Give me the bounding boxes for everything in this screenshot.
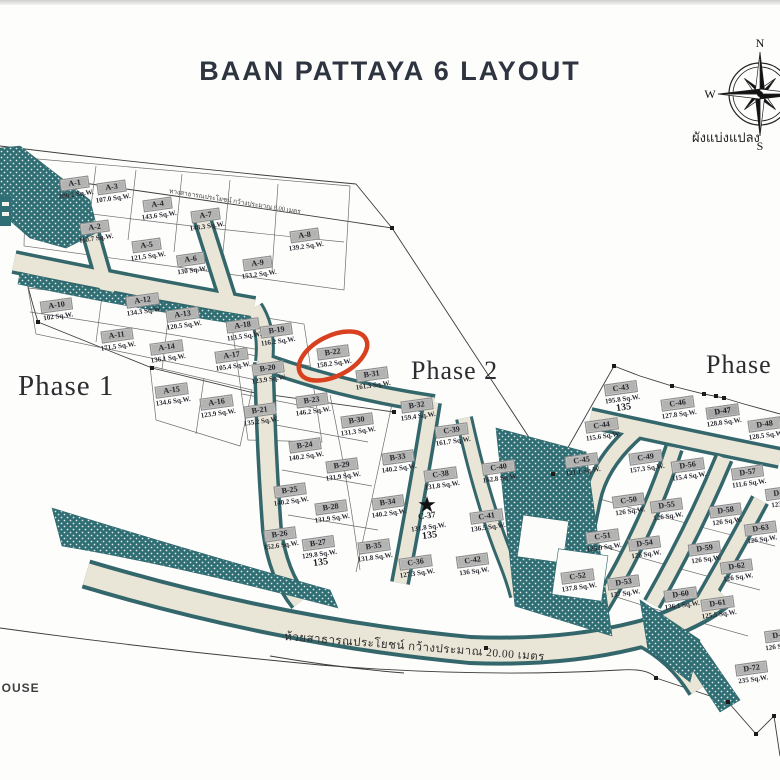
lot-a13: A-13120.5 Sq.W. bbox=[164, 302, 202, 332]
lot-b19: B-19116.2 Sq.W. bbox=[258, 318, 296, 348]
phase-1-label: Phase 1 bbox=[18, 370, 114, 403]
page-title: BAAN PATTAYA 6 LAYOUT bbox=[0, 56, 780, 87]
lot-d61: D-61125.5 Sq.W. bbox=[699, 591, 737, 621]
lot-a17: A-17105.4 Sq.W. bbox=[213, 343, 251, 373]
lot-c45: C-45121.1 Sq.W. bbox=[563, 448, 601, 478]
lot-b21: B-21135.2 Sq.W. bbox=[241, 398, 279, 428]
lot-d62: D-62126 Sq.W. bbox=[719, 554, 755, 583]
compass-n-label: N bbox=[756, 36, 765, 50]
lot-d59: D-59126 Sq.W. bbox=[687, 536, 723, 565]
lot-d54: D-54126 Sq.W. bbox=[627, 531, 663, 560]
lot-d60: D-60136.1 Sq.W. bbox=[662, 582, 700, 612]
lot-a11: A-11171.5 Sq.W. bbox=[98, 323, 136, 353]
lot-b20: B-20123.9 Sq.W. bbox=[249, 356, 287, 386]
lot-c39: C-39161.7 Sq.W. bbox=[433, 418, 471, 448]
lot-b23: B-23146.2 Sq.W. bbox=[293, 388, 331, 418]
lot-a15: A-15134.6 Sq.W. bbox=[153, 378, 191, 408]
lot-b24: B-24140.2 Sq.W. bbox=[286, 433, 324, 463]
lot-d48: D-48128.5 Sq.W. bbox=[746, 412, 780, 442]
lot-b27: B-27129.8 Sq.W.135 bbox=[299, 531, 339, 571]
lot-a3: A-3107.0 Sq.W. bbox=[93, 175, 131, 205]
lot-c36: C-36127.3 Sq.W. bbox=[397, 550, 435, 580]
lot-a18: A-18113.5 Sq.W. bbox=[224, 313, 262, 343]
page-top-edge bbox=[0, 0, 780, 5]
lot-a12: A-12134.3 Sq.W. bbox=[124, 288, 162, 318]
lot-c40: C-40162.8 Sq.W. bbox=[480, 455, 518, 485]
lot-b22-highlighted: B-22158.2 Sq.W. bbox=[314, 340, 352, 370]
compass-w-label: W bbox=[704, 87, 716, 101]
lot-a2: A-2110.7 Sq.W. bbox=[76, 215, 114, 245]
phase-3-label: Phase 3 bbox=[706, 350, 780, 380]
lot-a8: A-8139.2 Sq.W. bbox=[286, 223, 324, 253]
lot-d47: D-47128.8 Sq.W. bbox=[704, 399, 742, 429]
lot-b33: B-33140.2 Sq.W. bbox=[379, 445, 417, 475]
phase-2-label: Phase 2 bbox=[411, 356, 498, 386]
lot-id: D-7 bbox=[764, 628, 780, 644]
lot-d58: D-58126 Sq.W. bbox=[708, 498, 744, 527]
lot-a4: A-4143.6 Sq.W. bbox=[139, 192, 177, 222]
lot-b26: B-26152.6 Sq.W. bbox=[261, 522, 299, 552]
lot-d72: D-72235 Sq.W. bbox=[734, 656, 770, 685]
site-plan-map: ★ N S W E bbox=[0, 0, 780, 780]
lot-a9: A-9153.2 Sq.W. bbox=[239, 251, 277, 281]
lot-c51: C-51125.9 Sq.W. bbox=[584, 524, 622, 554]
lot-c52: C-52137.8 Sq.W. bbox=[559, 564, 597, 594]
lot-b31: B-31161.3 Sq.W. bbox=[353, 362, 391, 392]
lot-c38: C-38131.8 Sq.W. bbox=[422, 462, 460, 492]
lot-d56: D-56115.4 Sq.W. bbox=[669, 453, 707, 483]
lot-c50: C-50126 Sq.W. bbox=[611, 488, 647, 517]
left-edge-structure-icon bbox=[0, 196, 11, 226]
lot-c42: C-42136 Sq.W. bbox=[455, 548, 491, 577]
lot-b32: B-32159.4 Sq.W. bbox=[398, 393, 436, 423]
lot-id: D- bbox=[765, 486, 780, 502]
lot-a16: A-16123.9 Sq.W. bbox=[198, 390, 236, 420]
lot-c37: C-37131.8 Sq.W.135 bbox=[408, 504, 448, 544]
lot-b29: B-29131.9 Sq.W. bbox=[323, 453, 361, 483]
lot-a7: A-7148.3 Sq.W. bbox=[187, 203, 225, 233]
lot-c41: C-41136.5 Sq.W. bbox=[468, 504, 506, 534]
lot-d57: D-57111.6 Sq.W. bbox=[729, 460, 767, 490]
lot-c44: C-44115.6 Sq.W. bbox=[583, 413, 621, 443]
lot-c49: C-49157.3 Sq.W. bbox=[627, 445, 665, 475]
site-plan-page: ★ N S W E bbox=[0, 0, 780, 780]
lot-a1: A-1200.2 Sq.W. bbox=[56, 171, 94, 201]
lot-d53: D-53137 Sq.W. bbox=[606, 570, 642, 599]
lot-d63: D-63126 Sq.W. bbox=[743, 516, 779, 545]
lot-a14: A-14136.1 Sq.W. bbox=[148, 335, 186, 365]
lot-b28: B-28131.9 Sq.W. bbox=[312, 495, 350, 525]
lot-id: C-37 bbox=[418, 510, 437, 521]
lot-a10: A-10102 Sq.W. bbox=[39, 293, 75, 322]
lot-a5: A-5121.5 Sq.W. bbox=[128, 233, 166, 263]
plan-caption: ผังแบ่งแปลง bbox=[692, 127, 780, 148]
lot-d55: D-55126 Sq.W. bbox=[649, 493, 685, 522]
lot-c43: C-43195.8 Sq.W.135 bbox=[602, 376, 642, 416]
lot-b34: B-34140.2 Sq.W. bbox=[369, 490, 407, 520]
lot-c46: C-46127.8 Sq.W. bbox=[659, 391, 697, 421]
lot-b30: B-30131.3 Sq.W. bbox=[338, 408, 376, 438]
lot-d: D-123.1 bbox=[764, 482, 780, 510]
house-label: HOUSE bbox=[0, 681, 40, 695]
lot-d7: D-7126 Sq.W. bbox=[762, 623, 780, 652]
lot-b35: B-35131.8 Sq.W. bbox=[355, 534, 393, 564]
lot-a6: A-6130 Sq.W. bbox=[174, 247, 207, 276]
lot-b25: B-25140.2 Sq.W. bbox=[271, 478, 309, 508]
